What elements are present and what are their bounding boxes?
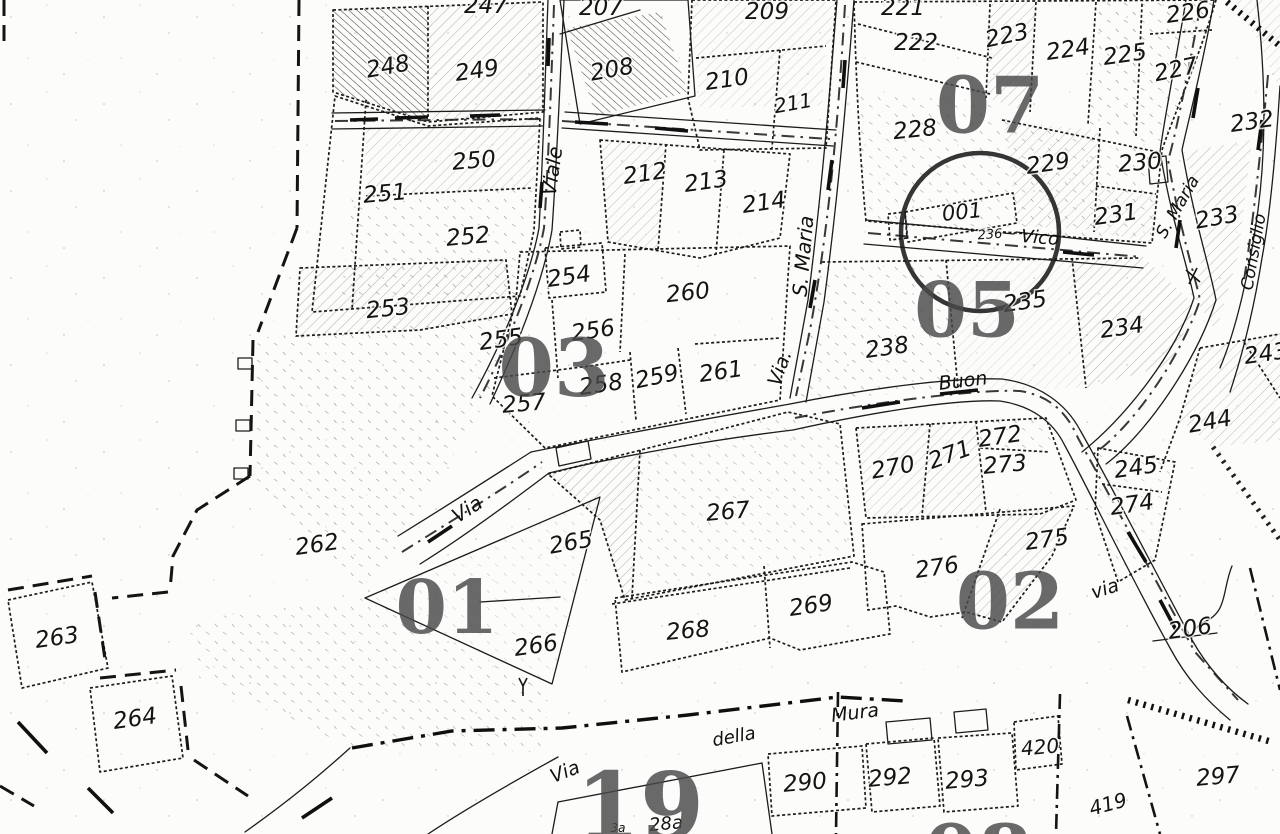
zone-number-05-1: 05 [914, 266, 1020, 355]
parcel-label-260-30: 260 [665, 278, 711, 308]
parcel-label-243-37: 243 [1242, 338, 1280, 370]
parcel-label-253-31: 253 [365, 294, 411, 324]
zone-number-07-0: 07 [936, 61, 1045, 152]
parcel-label-222-4: 222 [894, 30, 938, 56]
parcel-label-221-3: 221 [881, 0, 925, 21]
parcel-label-420-60: 420 [1020, 733, 1060, 760]
parcel-label-209-2: 209 [745, 0, 789, 25]
parcel-label-207-1: 207 [579, 0, 623, 21]
parcel-label-273-45: 273 [982, 450, 1028, 480]
parcel-label-251-20: 251 [362, 179, 408, 209]
parcel-label-290-61: 290 [782, 768, 828, 798]
scan-noise-texture [0, 0, 1280, 834]
zone-number-19-5: 19 [576, 752, 704, 834]
parcel-label-267-49: 267 [705, 497, 751, 527]
zone-number-02-4: 02 [956, 557, 1065, 648]
parcel-label-293-63: 293 [944, 765, 990, 795]
cadastral-map-page: 2472072092212222232242252262272482492082… [0, 0, 1280, 834]
zone-number-08-6: 08 [924, 809, 1033, 834]
parcel-label-252-26: 252 [445, 222, 491, 252]
parcel-label-236-28: 236 [977, 227, 1003, 244]
parcel-label-268-55: 268 [665, 616, 711, 646]
parcel-label-228-16: 228 [892, 115, 938, 145]
street-label-Vico-3: Vico [1020, 226, 1060, 250]
parcel-label-001-27: 001 [941, 198, 983, 226]
parcel-label-292-62: 292 [867, 763, 913, 793]
parcel-label-297-64: 297 [1195, 762, 1241, 792]
zone-number-03-2: 03 [498, 321, 609, 415]
parcel-label-250-17: 250 [451, 146, 497, 176]
parcel-label-247-0: 247 [464, 0, 508, 19]
parcel-label-230-19: 230 [1117, 148, 1163, 178]
zone-number-01-3: 01 [396, 565, 499, 651]
cadastral-map-canvas: 2472072092212222232242252262272482492082… [0, 0, 1280, 834]
